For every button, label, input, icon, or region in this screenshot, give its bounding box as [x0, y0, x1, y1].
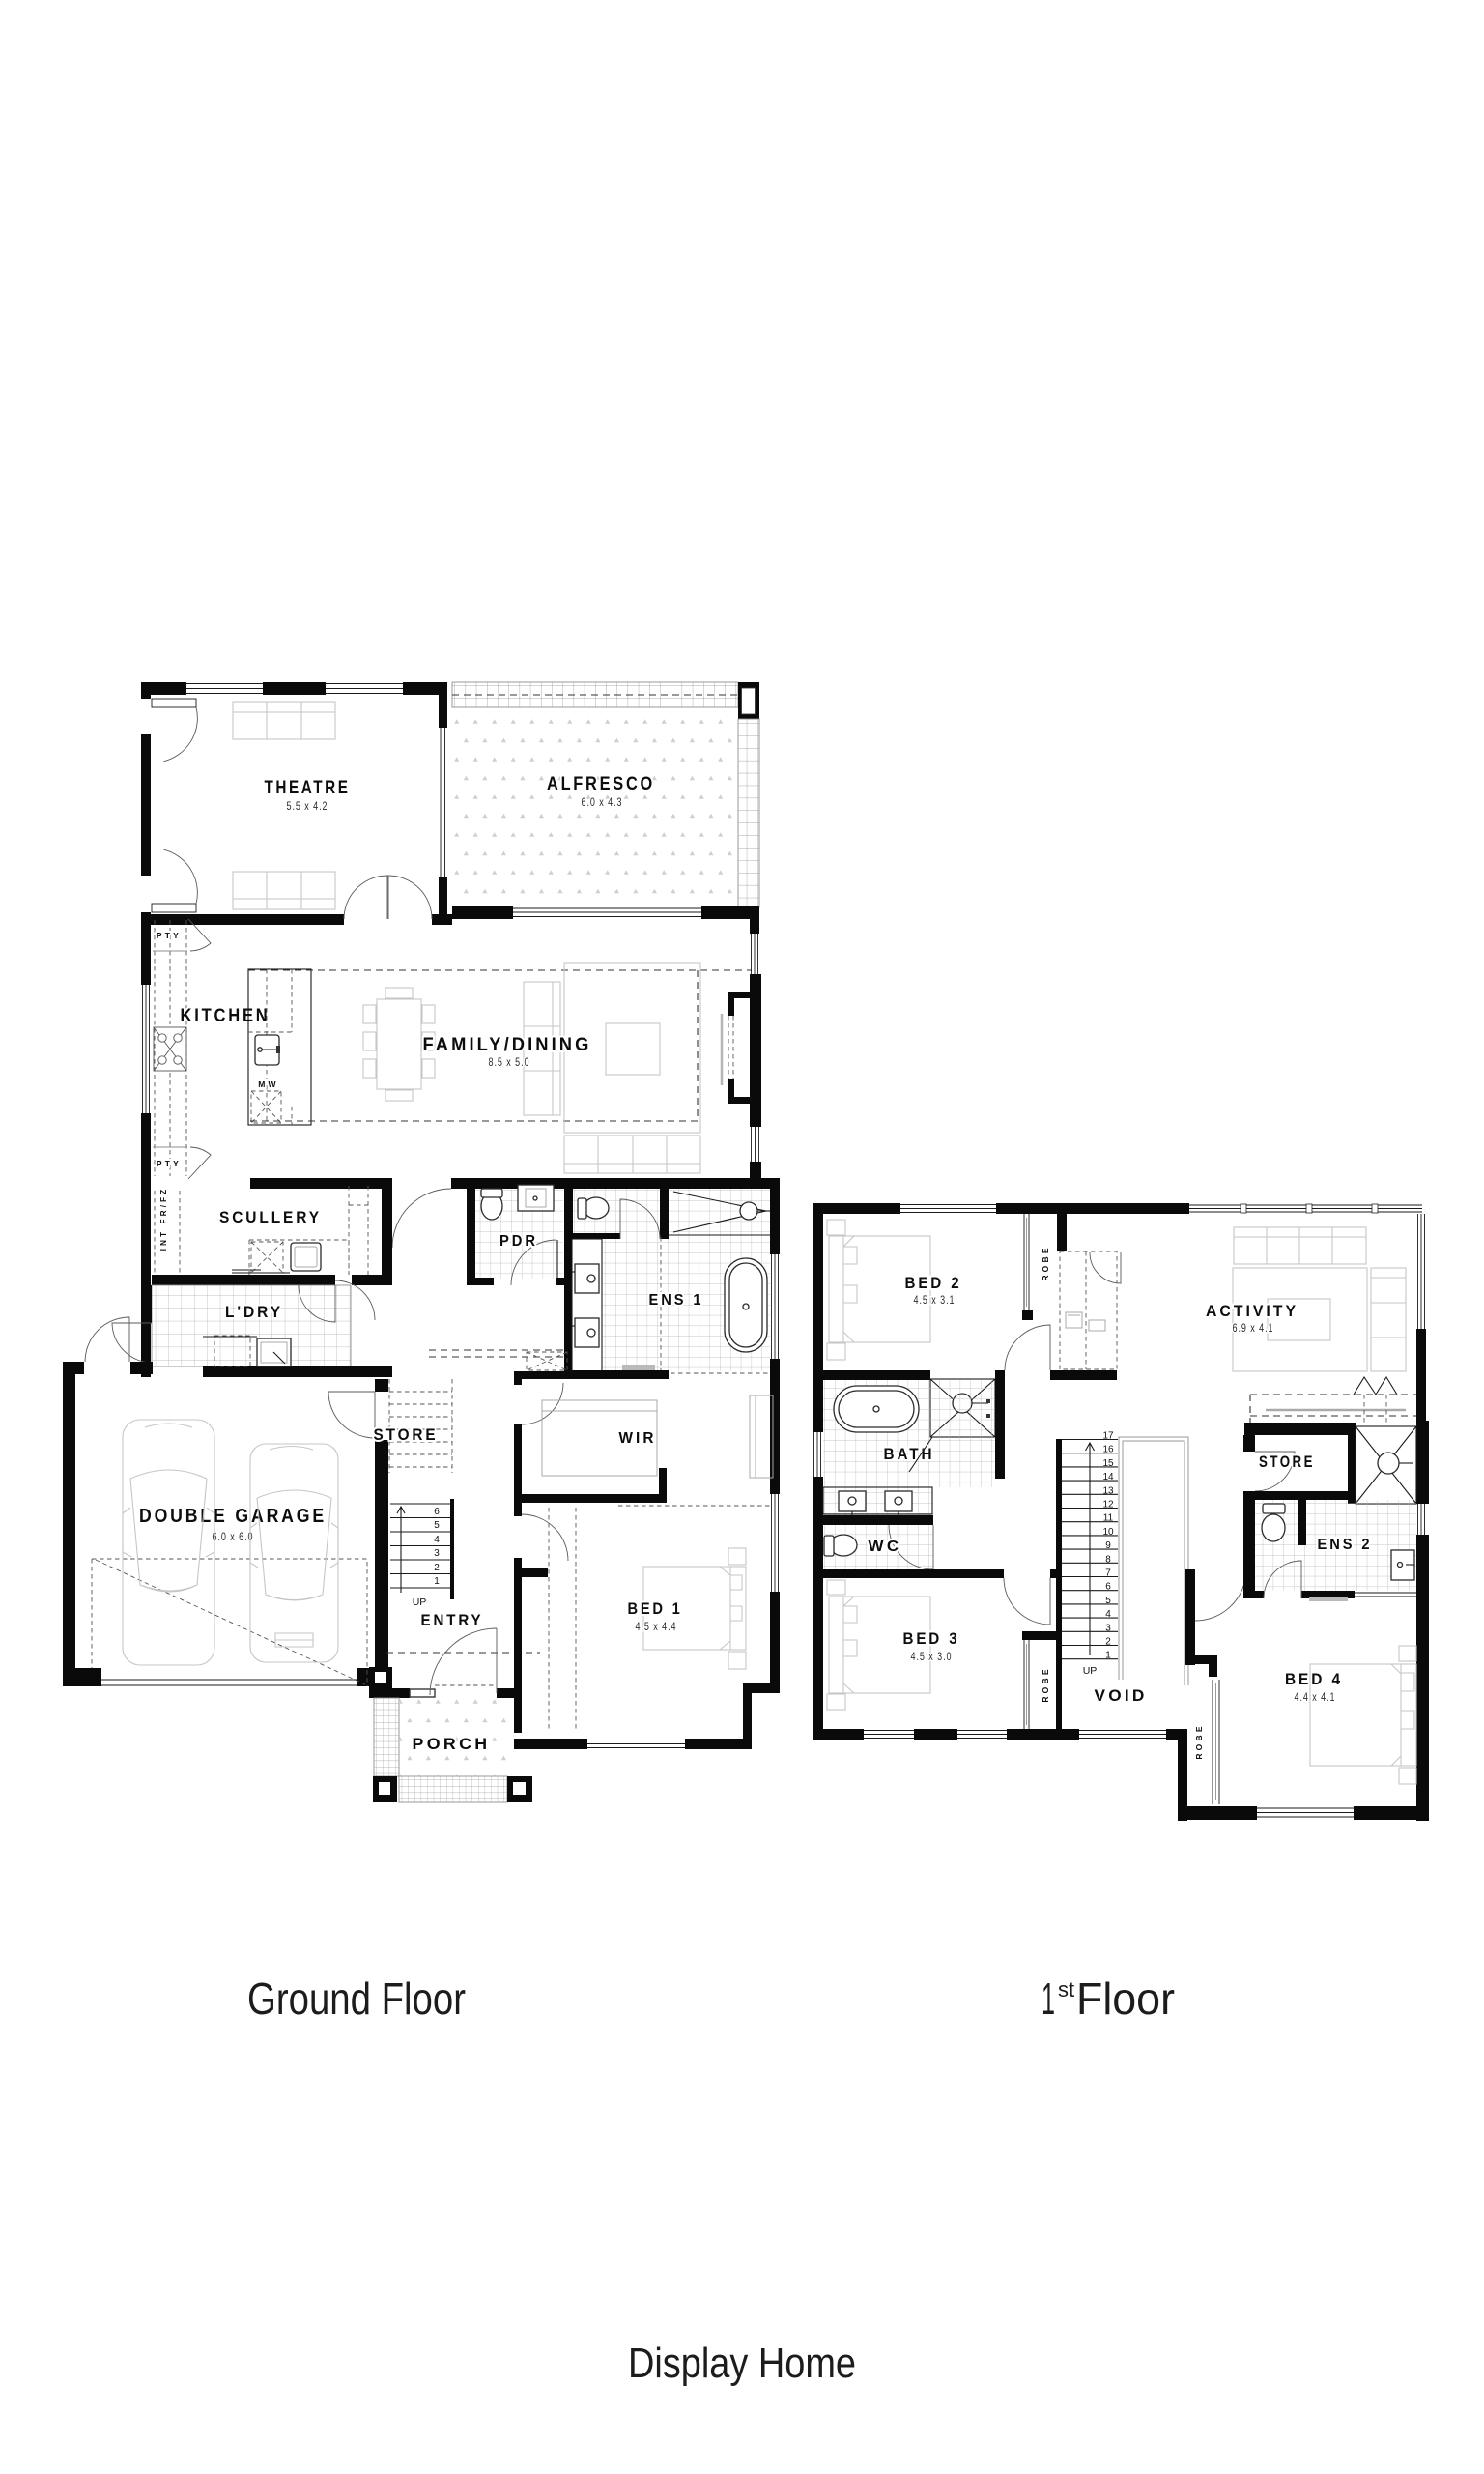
- svg-text:UP: UP: [1083, 1665, 1098, 1677]
- svg-text:11: 11: [1103, 1513, 1114, 1524]
- svg-text:3: 3: [434, 1548, 440, 1559]
- svg-text:2: 2: [1105, 1637, 1111, 1648]
- svg-text:5: 5: [434, 1520, 440, 1531]
- svg-text:VOID: VOID: [1095, 1686, 1148, 1705]
- svg-text:BATH: BATH: [884, 1445, 935, 1463]
- svg-text:BED 2: BED 2: [905, 1274, 962, 1292]
- svg-text:1: 1: [1105, 1651, 1111, 1661]
- svg-text:ALFRESCO: ALFRESCO: [547, 774, 655, 794]
- svg-text:4: 4: [434, 1535, 440, 1545]
- svg-text:1: 1: [434, 1576, 440, 1587]
- svg-text:BED 4: BED 4: [1285, 1670, 1343, 1688]
- svg-text:6.9 x 4.1: 6.9 x 4.1: [1233, 1323, 1274, 1335]
- svg-text:st: st: [1058, 1977, 1074, 2001]
- svg-text:5.5 x 4.2: 5.5 x 4.2: [287, 801, 328, 813]
- svg-text:PTY: PTY: [157, 931, 182, 940]
- svg-text:L'DRY: L'DRY: [225, 1303, 283, 1321]
- svg-text:BED 1: BED 1: [628, 1599, 683, 1618]
- svg-text:Ground Floor: Ground Floor: [247, 1973, 466, 2024]
- svg-text:SCULLERY: SCULLERY: [219, 1208, 322, 1226]
- svg-text:STORE: STORE: [1259, 1453, 1315, 1471]
- svg-text:4.5 x 3.0: 4.5 x 3.0: [911, 1652, 953, 1663]
- svg-text:PDR: PDR: [499, 1233, 538, 1250]
- svg-text:6.0 x 4.3: 6.0 x 4.3: [582, 797, 623, 809]
- svg-text:4.5 x 3.1: 4.5 x 3.1: [914, 1295, 956, 1307]
- svg-text:5: 5: [1105, 1596, 1111, 1606]
- svg-text:17: 17: [1102, 1431, 1114, 1442]
- svg-text:BED 3: BED 3: [903, 1629, 960, 1648]
- svg-text:4.5 x 4.4: 4.5 x 4.4: [636, 1622, 677, 1633]
- svg-text:INT FR/FZ: INT FR/FZ: [159, 1187, 168, 1251]
- svg-text:ROBE: ROBE: [1041, 1245, 1050, 1280]
- svg-text:ENTRY: ENTRY: [421, 1611, 484, 1629]
- svg-text:1: 1: [1042, 1973, 1055, 2024]
- svg-text:8: 8: [1105, 1554, 1111, 1565]
- svg-text:ACTIVITY: ACTIVITY: [1206, 1302, 1298, 1320]
- svg-text:PORCH: PORCH: [413, 1735, 491, 1753]
- svg-text:3: 3: [1105, 1623, 1111, 1633]
- svg-text:4.4 x 4.1: 4.4 x 4.1: [1295, 1692, 1336, 1704]
- svg-text:ENS 1: ENS 1: [649, 1292, 704, 1309]
- svg-text:ROBE: ROBE: [1041, 1666, 1050, 1702]
- svg-text:FAMILY/DINING: FAMILY/DINING: [423, 1035, 592, 1055]
- svg-text:DOUBLE GARAGE: DOUBLE GARAGE: [139, 1506, 327, 1527]
- svg-text:16: 16: [1102, 1445, 1114, 1455]
- svg-text:WIR: WIR: [619, 1430, 657, 1447]
- svg-text:14: 14: [1102, 1472, 1114, 1482]
- svg-text:THEATRE: THEATRE: [265, 778, 351, 798]
- svg-text:STORE: STORE: [374, 1425, 439, 1444]
- svg-text:2: 2: [434, 1563, 440, 1573]
- svg-text:PTY: PTY: [157, 1159, 182, 1168]
- svg-text:10: 10: [1102, 1527, 1114, 1538]
- svg-text:6: 6: [1105, 1582, 1111, 1593]
- svg-text:KITCHEN: KITCHEN: [181, 1006, 271, 1026]
- svg-text:8.5 x 5.0: 8.5 x 5.0: [489, 1057, 530, 1069]
- svg-text:Display Home: Display Home: [628, 2340, 856, 2387]
- svg-text:ENS 2: ENS 2: [1318, 1537, 1373, 1553]
- svg-text:13: 13: [1102, 1485, 1114, 1496]
- svg-text:4: 4: [1105, 1609, 1111, 1620]
- svg-text:WC: WC: [869, 1539, 902, 1555]
- svg-text:6.0 x 6.0: 6.0 x 6.0: [213, 1532, 254, 1543]
- svg-text:MW: MW: [258, 1079, 279, 1089]
- svg-text:7: 7: [1105, 1568, 1111, 1579]
- svg-text:12: 12: [1102, 1500, 1114, 1510]
- svg-text:6: 6: [434, 1507, 440, 1517]
- svg-text:ROBE: ROBE: [1194, 1723, 1204, 1759]
- svg-text:Floor: Floor: [1076, 1973, 1175, 2024]
- svg-text:15: 15: [1102, 1458, 1114, 1469]
- svg-text:UP: UP: [413, 1597, 427, 1608]
- svg-text:9: 9: [1105, 1540, 1111, 1551]
